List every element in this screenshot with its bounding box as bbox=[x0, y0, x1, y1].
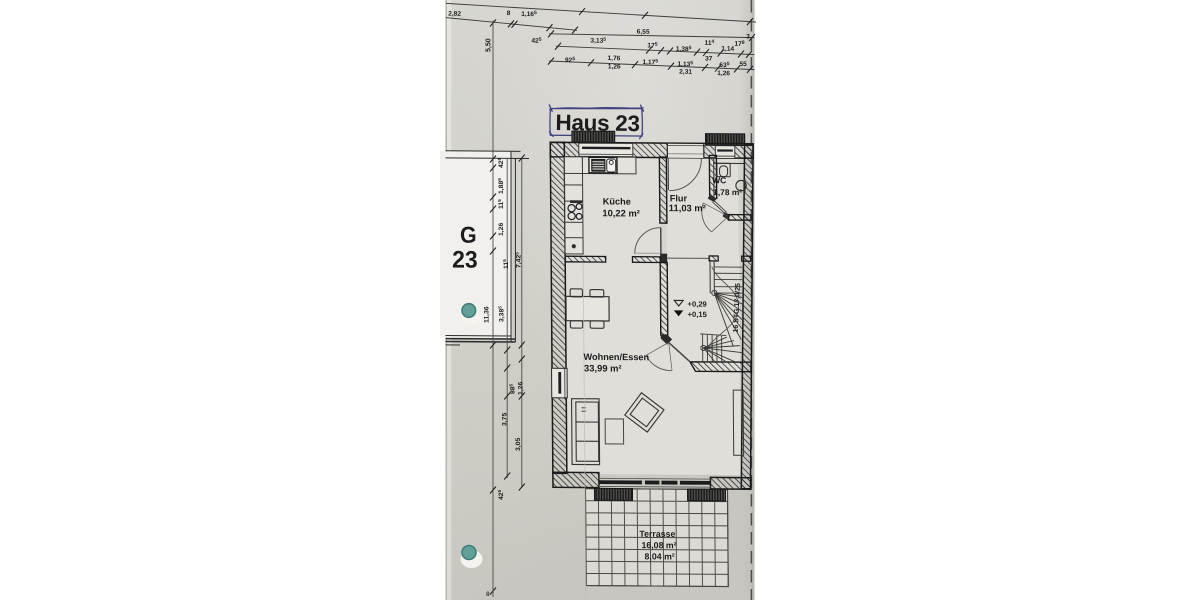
svg-text:1,26: 1,26 bbox=[608, 63, 621, 70]
svg-text:1,26: 1,26 bbox=[717, 70, 730, 77]
svg-text:2,31: 2,31 bbox=[679, 68, 692, 75]
svg-text:Wohnen/Essen: Wohnen/Essen bbox=[583, 352, 649, 362]
svg-text:10,22 m²: 10,22 m² bbox=[602, 207, 640, 218]
svg-text:16,08 m²: 16,08 m² bbox=[641, 540, 676, 550]
svg-text:G: G bbox=[460, 222, 477, 248]
svg-text:+0,29: +0,29 bbox=[687, 300, 706, 309]
svg-text:11,36: 11,36 bbox=[484, 306, 491, 323]
svg-text:8: 8 bbox=[507, 10, 511, 17]
svg-text:WC: WC bbox=[712, 175, 726, 185]
svg-text:Küche: Küche bbox=[603, 196, 631, 206]
svg-text:55: 55 bbox=[739, 61, 747, 68]
svg-text:+0,15: +0,15 bbox=[688, 310, 708, 319]
svg-text:1,14: 1,14 bbox=[721, 45, 734, 52]
svg-text:1,76: 1,76 bbox=[607, 55, 620, 62]
svg-text:1,78 m²: 1,78 m² bbox=[713, 187, 742, 197]
svg-text:23: 23 bbox=[452, 246, 478, 273]
svg-text:8,04 m²: 8,04 m² bbox=[644, 551, 674, 561]
svg-text:37: 37 bbox=[705, 55, 713, 62]
svg-text:8: 8 bbox=[486, 591, 490, 598]
svg-text:5,50: 5,50 bbox=[486, 38, 493, 52]
svg-text:6,55: 6,55 bbox=[637, 29, 650, 36]
svg-text:3: 3 bbox=[746, 33, 750, 40]
svg-text:33,99 m²: 33,99 m² bbox=[584, 362, 622, 373]
svg-text:Terrasse: Terrasse bbox=[639, 529, 675, 539]
svg-text:3,75: 3,75 bbox=[502, 413, 509, 426]
svg-text:1,26: 1,26 bbox=[498, 223, 505, 236]
svg-text:11,03 m²: 11,03 m² bbox=[669, 202, 706, 213]
svg-text:3,05: 3,05 bbox=[515, 438, 522, 451]
svg-text:2,82: 2,82 bbox=[448, 11, 461, 18]
svg-text:1,26: 1,26 bbox=[518, 382, 525, 395]
